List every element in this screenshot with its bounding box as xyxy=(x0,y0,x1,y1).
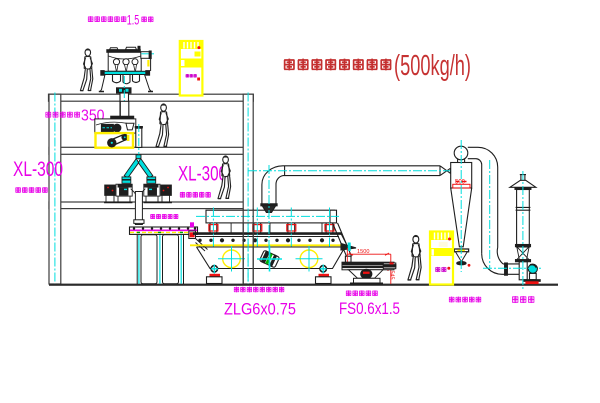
svg-text:500: 500 xyxy=(455,180,466,186)
svg-text:(500kg/h): (500kg/h) xyxy=(394,50,471,82)
svg-text:545: 545 xyxy=(388,271,394,280)
svg-text:1500: 1500 xyxy=(357,249,369,255)
svg-text:FS0.6x1.5: FS0.6x1.5 xyxy=(339,300,400,318)
svg-text:XL-300: XL-300 xyxy=(13,158,63,181)
svg-text:XL-300: XL-300 xyxy=(178,163,227,186)
svg-text:1.5: 1.5 xyxy=(127,11,140,27)
svg-text:ZLG6x0.75: ZLG6x0.75 xyxy=(224,301,296,319)
